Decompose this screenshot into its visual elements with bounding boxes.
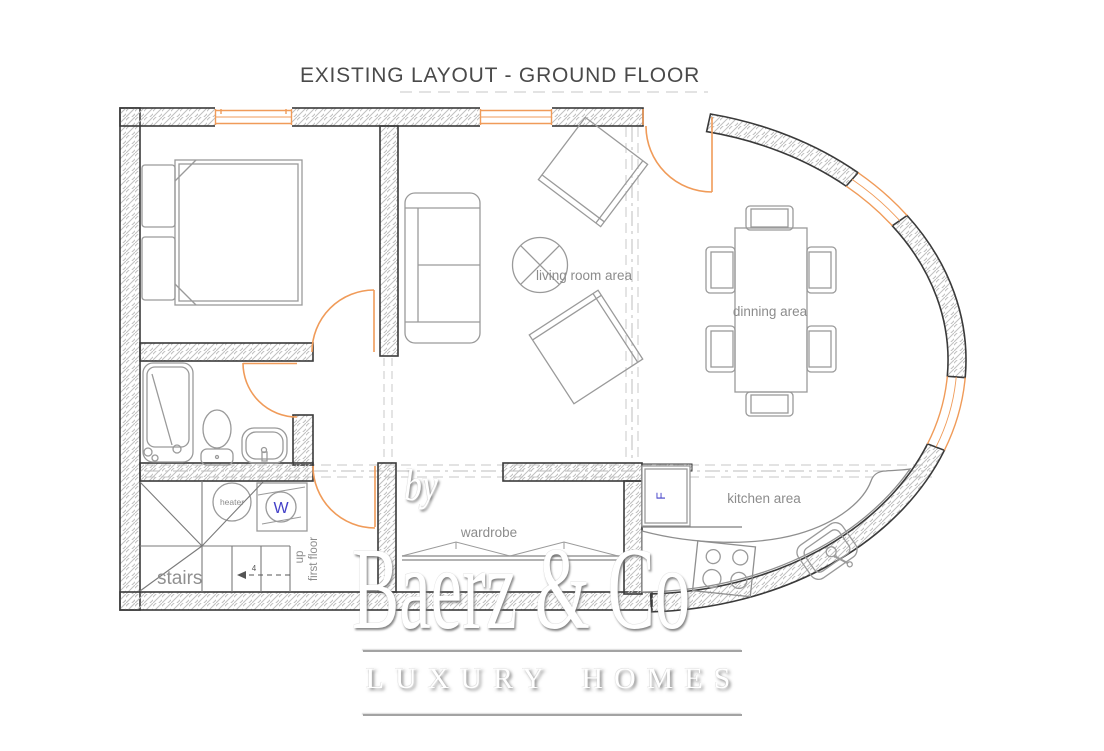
- bathtub: [143, 363, 193, 462]
- washing-machine-letter: W: [273, 500, 289, 517]
- bed-pillow-1: [142, 165, 175, 227]
- wall-top: [120, 108, 643, 126]
- dining-chair-right-1: [807, 247, 836, 293]
- wall-bathroom-east: [293, 415, 313, 465]
- entry-door: [643, 109, 712, 192]
- stairs-steps-note: 4: [252, 564, 257, 573]
- wall-kitchen-north: [503, 463, 642, 481]
- wall-utility-north: [140, 463, 313, 481]
- toilet: [201, 410, 233, 465]
- watermark-by: by: [404, 458, 438, 511]
- wall-curve-segment-1: [707, 114, 859, 186]
- armchair-top: [538, 117, 647, 226]
- wall-bedroom-south: [140, 343, 313, 361]
- sofa: [405, 193, 480, 343]
- stairs-winder-3: [202, 482, 263, 546]
- dining-chair-bottom: [746, 392, 793, 416]
- hall-door-swing: [313, 466, 375, 528]
- bathroom-door-swing: [243, 363, 297, 417]
- watermark-rule-top: [363, 650, 742, 652]
- bathroom-door: [243, 363, 297, 417]
- bathroom-sink: [242, 428, 287, 463]
- wall-left: [120, 108, 140, 610]
- bedroom-door: [312, 290, 374, 352]
- stairs-up-label: up: [294, 551, 306, 564]
- dining-chair-left-1: [706, 247, 735, 293]
- bed-mattress: [179, 164, 298, 301]
- bed-fold-top: [175, 160, 196, 181]
- dining-chair-top: [746, 206, 793, 230]
- watermark-tagline: LUXURY HOMES: [352, 662, 744, 696]
- stairs-label: stairs: [157, 568, 202, 589]
- wall-bedroom-east: [380, 126, 398, 356]
- wall-curve-segment-2: [892, 216, 966, 378]
- bed-fold-bottom: [175, 284, 196, 305]
- entry-door-swing: [646, 126, 712, 192]
- coffee-table: [513, 238, 568, 293]
- bed-pillow-2: [142, 237, 175, 300]
- bedroom-door-swing: [312, 290, 374, 352]
- dining-label: dinning area: [733, 304, 808, 319]
- dining-chair-left-2: [706, 326, 735, 372]
- dining-chair-right-2: [807, 326, 836, 372]
- watermark-rule-bottom: [363, 714, 742, 716]
- stairs-direction-arrow: [237, 571, 246, 579]
- hall-door: [313, 466, 375, 528]
- floor-plan-page: EXISTING LAYOUT - GROUND FLOOR: [0, 0, 1104, 751]
- heater-label: heater: [220, 497, 244, 507]
- stairs-winder-1: [140, 482, 202, 546]
- bed: [142, 160, 302, 305]
- kitchen-label: kitchen area: [727, 491, 801, 506]
- bed-frame: [175, 160, 302, 305]
- watermark-brand: Baerz & Co: [352, 530, 690, 648]
- living-room-label: living room area: [536, 268, 633, 283]
- stairs-floor-label: first floor: [308, 537, 320, 581]
- curved-window-lower: [928, 376, 966, 450]
- bathtub-faucet: [144, 448, 152, 456]
- curved-window-upper: [846, 173, 907, 226]
- fridge-letter: F: [654, 492, 668, 499]
